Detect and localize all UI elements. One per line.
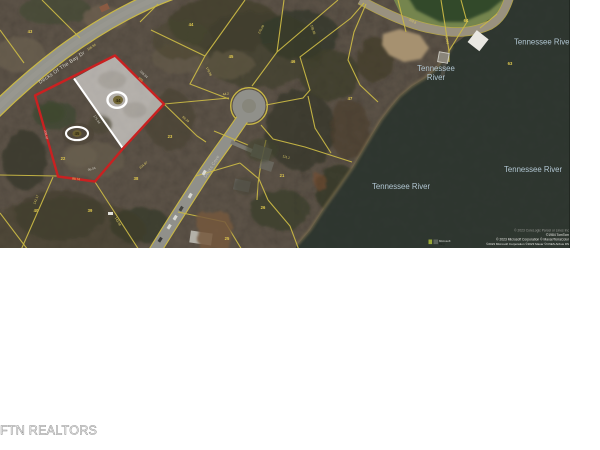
svg-text:©1984 TomTom: ©1984 TomTom xyxy=(546,233,569,237)
svg-text:44: 44 xyxy=(115,98,121,103)
svg-text:Tennessee: Tennessee xyxy=(417,64,455,73)
svg-text:© 2023 CoreLogic Parcel or Lin: © 2023 CoreLogic Parcel or Lines Inc xyxy=(514,229,569,233)
svg-text:39: 39 xyxy=(88,208,93,213)
svg-text:Bing: Bing xyxy=(439,242,445,246)
svg-text:©2023 Microsoft Corporation ©2: ©2023 Microsoft Corporation ©2023 Maxar … xyxy=(486,242,569,246)
svg-text:44: 44 xyxy=(189,22,194,27)
svg-text:26: 26 xyxy=(261,205,266,210)
svg-text:25: 25 xyxy=(225,236,230,241)
svg-text:47: 47 xyxy=(348,96,353,101)
svg-text:FTN REALTORS: FTN REALTORS xyxy=(0,424,97,438)
svg-text:© 2023 Microsoft Corporation ©: © 2023 Microsoft Corporation © Maxar/Ter… xyxy=(496,238,570,242)
svg-text:43: 43 xyxy=(28,29,33,34)
svg-text:64: 64 xyxy=(464,18,469,23)
svg-text:21: 21 xyxy=(280,173,285,178)
svg-text:River: River xyxy=(427,73,446,82)
svg-text:40: 40 xyxy=(34,208,39,213)
svg-text:Tennessee River: Tennessee River xyxy=(372,182,430,191)
svg-text:63: 63 xyxy=(508,61,513,66)
svg-text:Tennessee River: Tennessee River xyxy=(504,165,562,174)
svg-text:Tennessee River: Tennessee River xyxy=(514,38,572,47)
svg-text:38: 38 xyxy=(134,176,139,181)
svg-text:45: 45 xyxy=(229,54,234,59)
svg-text:23: 23 xyxy=(168,134,173,139)
svg-text:46: 46 xyxy=(291,59,296,64)
svg-text:22: 22 xyxy=(61,156,66,161)
svg-text:45: 45 xyxy=(75,131,80,136)
